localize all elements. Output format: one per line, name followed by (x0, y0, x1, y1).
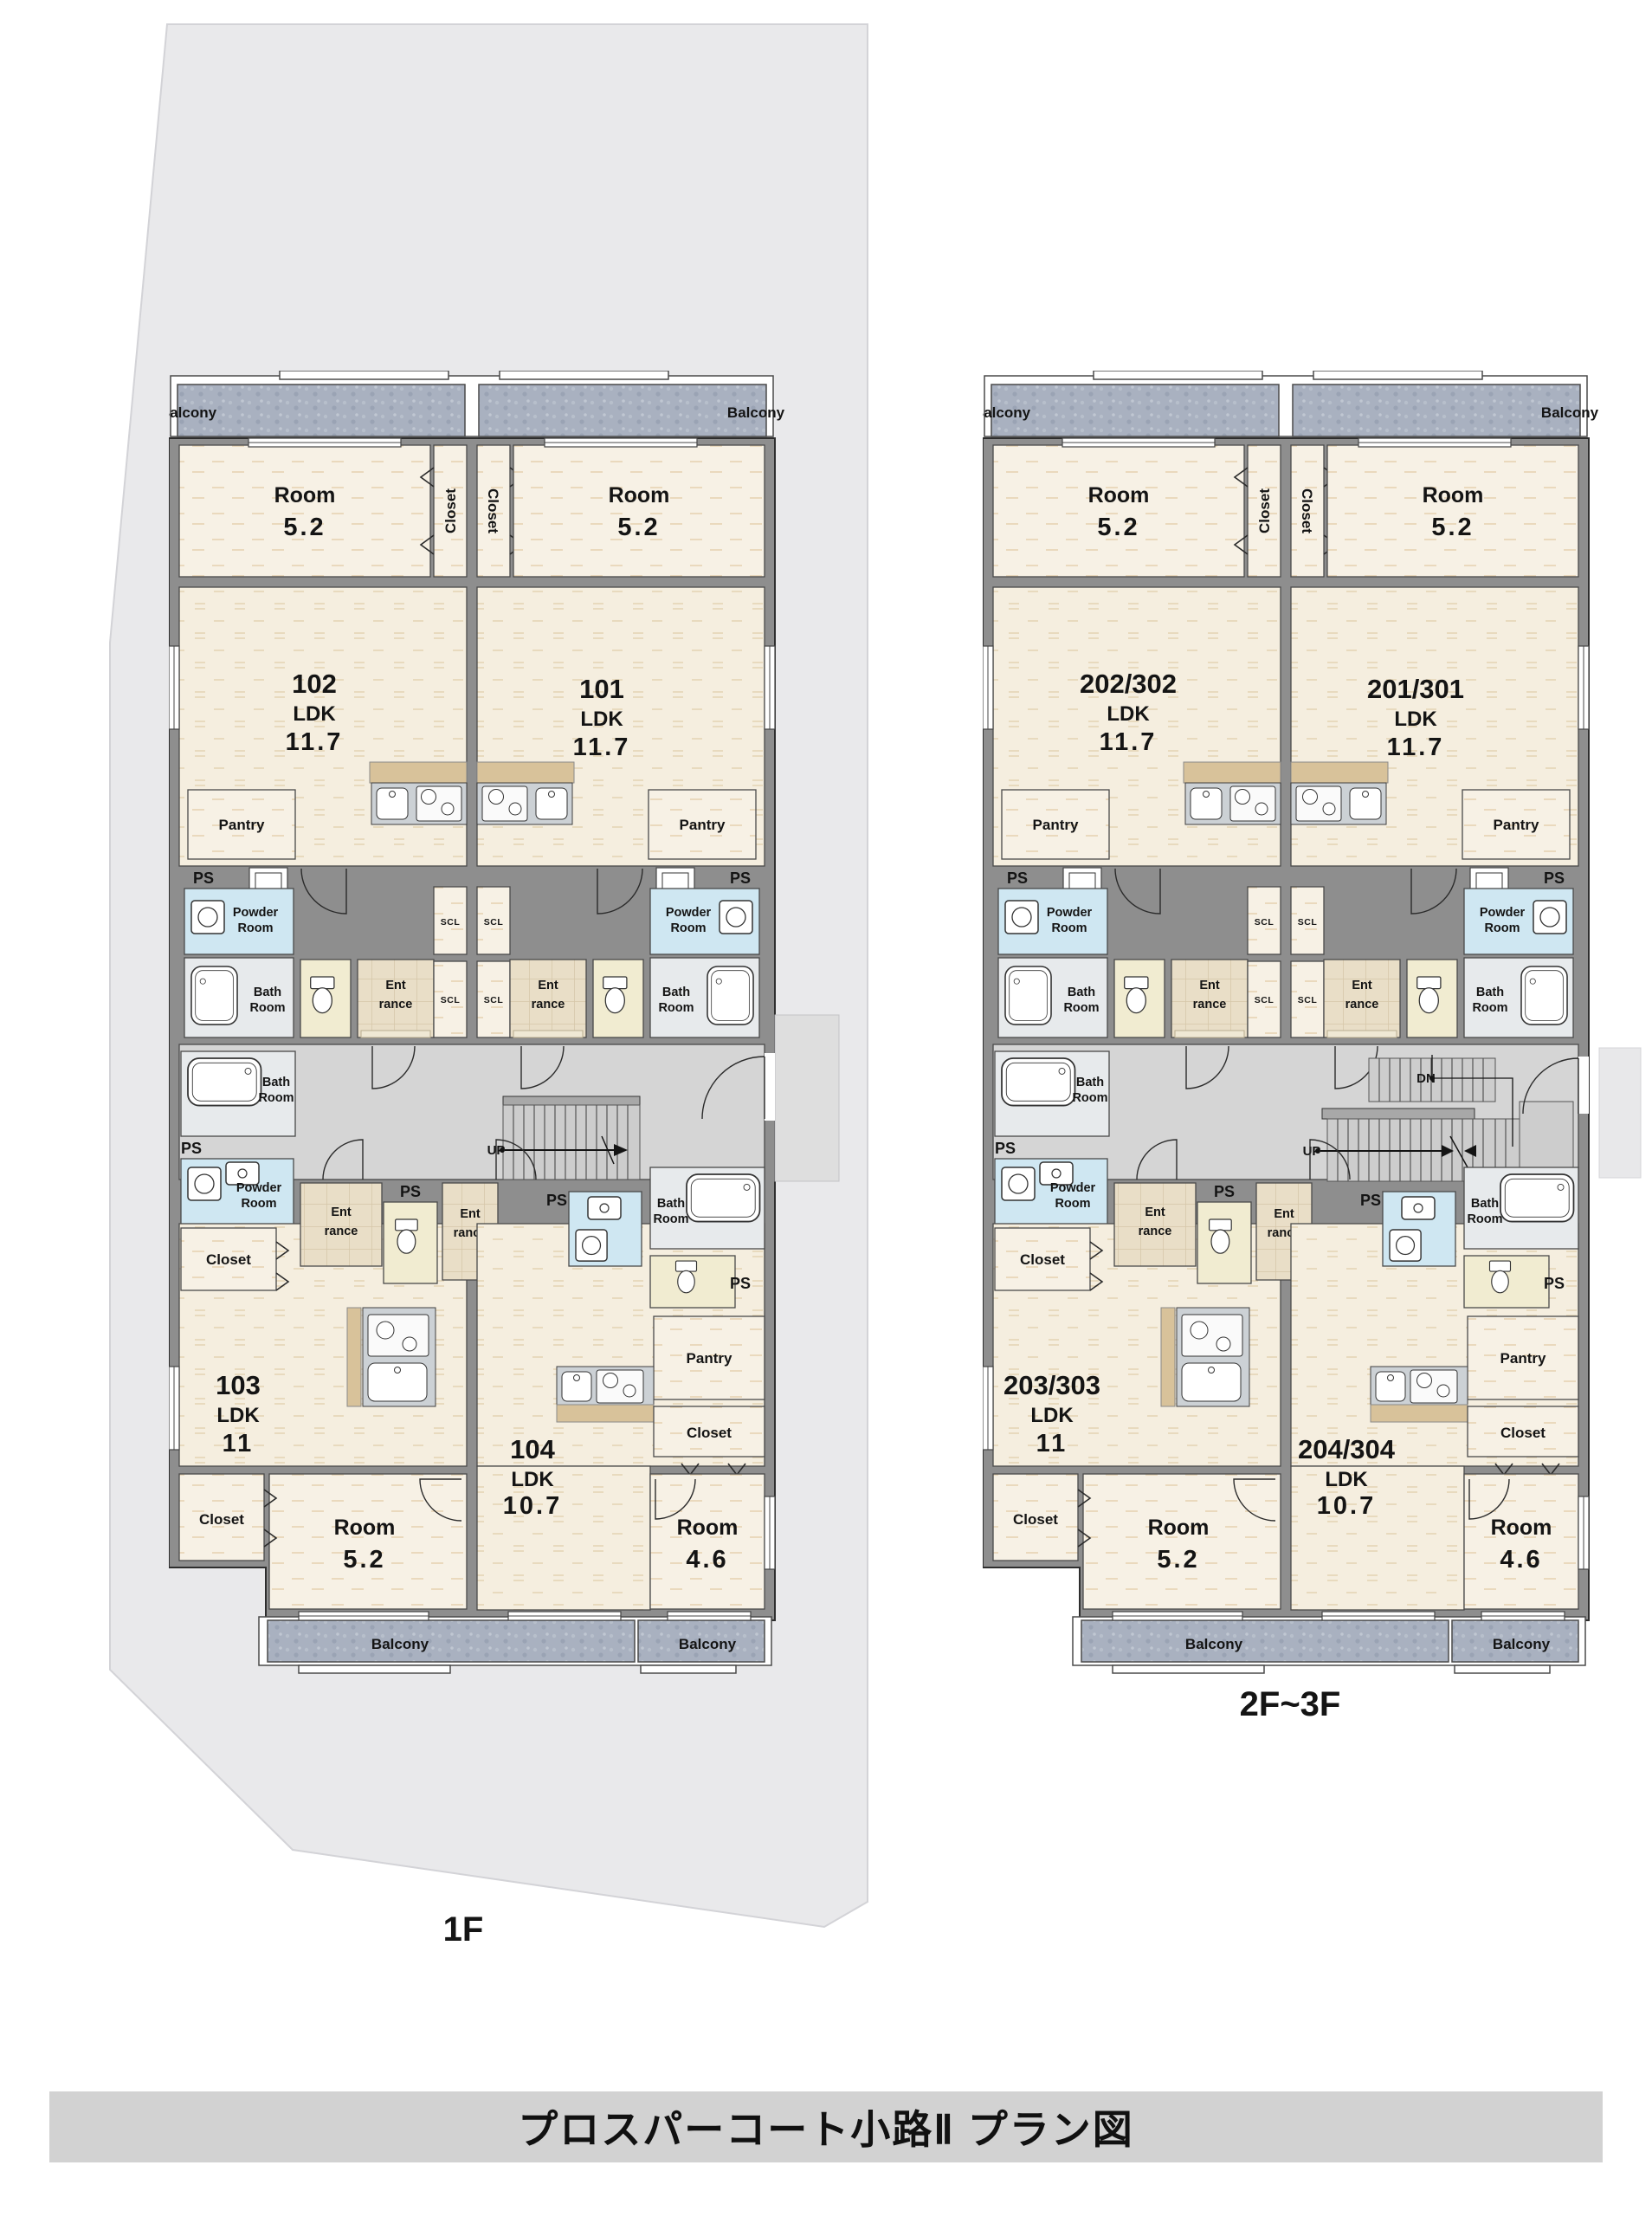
ldk-size: 11 (223, 1430, 255, 1458)
ps-label: PS (1007, 869, 1028, 887)
bath-room-label: Room (249, 1001, 285, 1015)
kitchen-lower-left (347, 1308, 436, 1406)
entrance-label: rance (379, 998, 413, 1012)
bath-room-label: Bath (1471, 1197, 1499, 1211)
entrance-label: Ent (1274, 1207, 1294, 1221)
entrance-label: Ent (385, 979, 406, 992)
bath-room-label: Room (1072, 1091, 1107, 1105)
entrance-label: rance (325, 1225, 358, 1238)
bath-room-upper-right: Bath Room (650, 958, 759, 1037)
balcony-label: Balcony (679, 1636, 737, 1652)
balcony-label: Balcony (1493, 1636, 1551, 1652)
pantry-label: Pantry (1033, 817, 1079, 833)
wc-lower-mid: PS (650, 1256, 751, 1308)
entrance-label: Ent (1352, 979, 1372, 992)
wc-lower-mid: PS (1464, 1256, 1565, 1308)
bedroom-upper-left: Room 5.2 (993, 445, 1244, 577)
stairs: UP (487, 1096, 640, 1180)
closet-lower-left-lower: Closet (179, 1474, 276, 1561)
ps-label: PS (1214, 1183, 1235, 1200)
entrance-upper-right: Ent rance (1324, 960, 1400, 1037)
wc-upper-left (1114, 960, 1165, 1037)
page: Balcony Balcony Room 5.2 Closet Closet R… (0, 0, 1652, 2217)
bath-room-label: Bath (262, 1076, 290, 1089)
entrance-upper-left: Ent rance (1171, 960, 1248, 1037)
room-label: Room (1148, 1516, 1210, 1540)
title-bar: プロスパーコート小路Ⅱ プラン図 (49, 2091, 1603, 2162)
unit-number: 202/302 (1080, 669, 1177, 699)
floor-plan-1f: Balcony Balcony Room 5.2 Closet Closet R… (169, 371, 844, 1678)
ldk-size: 11.7 (286, 728, 344, 756)
room-label: Room (1491, 1516, 1552, 1540)
balcony-label: Balcony (371, 1636, 429, 1652)
room-size: 5.2 (343, 1546, 385, 1574)
pantry-label: Pantry (1500, 1350, 1546, 1367)
kitchen-upper-left (370, 762, 467, 824)
ldk-label: LDK (1394, 708, 1437, 731)
powder-room-label: Powder (1480, 906, 1526, 920)
entrance-label: rance (1193, 998, 1227, 1012)
bath-room-label: Room (1472, 1001, 1507, 1015)
closet-label: Closet (687, 1425, 732, 1441)
bath-room-upper-left: Bath Room (998, 958, 1107, 1037)
bedroom-lower-left: Room 5.2 (269, 1474, 467, 1609)
kitchen-lower-mid (557, 1367, 654, 1422)
pantry-label: Pantry (219, 817, 265, 833)
closet-label: Closet (206, 1251, 251, 1268)
pantry-lower-mid: Pantry (654, 1316, 765, 1399)
kitchen-lower-mid (1371, 1367, 1468, 1422)
ps-label: PS (193, 869, 214, 887)
wc-upper-right (593, 960, 643, 1037)
bath-room-label: Bath (1076, 1076, 1104, 1089)
bedroom-upper-right: Room 5.2 (1327, 445, 1578, 577)
powder-room-label: Room (237, 921, 273, 935)
scl-label: SCL (441, 917, 461, 928)
bath-room-label: Room (1063, 1001, 1099, 1015)
entrance-label: Ent (331, 1205, 352, 1219)
bath-room-label: Bath (1068, 986, 1095, 999)
room-label: Room (1423, 483, 1484, 507)
bedroom-upper-right: Room 5.2 (513, 445, 765, 577)
bath-room-upper-right: Bath Room (1464, 958, 1573, 1037)
closet-label: Closet (1256, 488, 1273, 533)
closet-label: Closet (1500, 1425, 1546, 1441)
powder-room-label: Room (670, 921, 706, 935)
plan-title: プロスパーコート小路Ⅱ プラン図 (518, 2098, 1133, 2156)
kitchen-upper-right (1291, 762, 1388, 824)
ps-label: PS (546, 1192, 567, 1209)
balcony-top: Balcony Balcony (983, 371, 1599, 436)
bath-room-label: Bath (657, 1197, 685, 1211)
pantry-label: Pantry (680, 817, 726, 833)
kitchen-upper-left (1184, 762, 1281, 824)
room-size: 5.2 (1431, 514, 1474, 541)
scl-label: SCL (1298, 917, 1318, 928)
powder-room-label: Room (1051, 921, 1087, 935)
closet-label: Closet (199, 1511, 244, 1528)
room-size: 4.6 (1500, 1546, 1542, 1574)
powder-room-label: Powder (1050, 1181, 1096, 1195)
balcony-bottom: Balcony Balcony (259, 1617, 771, 1673)
bath-room-label: Bath (662, 986, 690, 999)
bath-room-label: Bath (254, 986, 281, 999)
powder-room-label: Powder (236, 1181, 282, 1195)
balcony-label: Balcony (1185, 1636, 1243, 1652)
entrance-label: rance (532, 998, 565, 1012)
entrance-upper-left: Ent rance (358, 960, 434, 1037)
ldk-label: LDK (1107, 702, 1150, 726)
bath-room-label: Room (1467, 1212, 1502, 1226)
room-label: Room (609, 483, 670, 507)
unit-number: 104 (510, 1434, 555, 1464)
entrance-label: rance (1345, 998, 1379, 1012)
scl-label: SCL (1255, 917, 1274, 928)
ldk-label: LDK (1325, 1468, 1368, 1491)
closet-label: Closet (1020, 1251, 1065, 1268)
kitchen-lower-left (1161, 1308, 1249, 1406)
balcony-label: Balcony (169, 404, 217, 421)
powder-room-label: Powder (233, 906, 279, 920)
closet-lower-left-upper: Closet (995, 1228, 1102, 1290)
ldk-size: 10.7 (503, 1492, 562, 1520)
entrance-upper-right: Ent rance (510, 960, 586, 1037)
closet-lower-left-lower: Closet (993, 1474, 1090, 1561)
ps-label: PS (730, 1275, 751, 1292)
bath-room-lower-mid: Bath Room (1464, 1167, 1578, 1249)
ldk-size: 11 (1036, 1430, 1068, 1458)
kitchen-upper-right (477, 762, 574, 824)
pantry-label: Pantry (1494, 817, 1539, 833)
scl-label: SCL (1298, 995, 1318, 1005)
stair-landing-outside (1599, 1048, 1641, 1178)
entrance-label: Ent (460, 1207, 481, 1221)
ps-label: PS (400, 1183, 421, 1200)
ldk-size: 11.7 (1100, 728, 1158, 756)
balcony-label: Balcony (983, 404, 1031, 421)
balcony-top: Balcony Balcony (169, 371, 785, 436)
ps-label: PS (1544, 1275, 1565, 1292)
closet-label: Closet (485, 488, 501, 533)
caption-1f: 1F (394, 1910, 532, 1949)
bath-room-label: Room (653, 1212, 688, 1226)
ldk-size: 11.7 (1387, 734, 1445, 761)
unit-number: 203/303 (1003, 1370, 1100, 1400)
powder-room-label: Powder (666, 906, 712, 920)
balcony-label: Balcony (1541, 404, 1599, 421)
floor-plan-2f3f: Balcony Balcony Room 5.2 Closet Closet R… (983, 371, 1652, 1678)
bedroom-lower-right: Room 4.6 (650, 1474, 765, 1609)
bedroom-lower-right: Room 4.6 (1464, 1474, 1578, 1609)
room-label: Room (334, 1516, 396, 1540)
room-size: 4.6 (686, 1546, 728, 1574)
scl-label: SCL (1255, 995, 1274, 1005)
room-size: 5.2 (283, 514, 326, 541)
scl-label: SCL (484, 917, 504, 928)
bath-room-lower-left: Bath Room (995, 1051, 1109, 1136)
room-size: 5.2 (617, 514, 660, 541)
ps-label: PS (1544, 869, 1565, 887)
caption-2f3f: 2F~3F (1199, 1685, 1381, 1724)
unit-number: 101 (579, 674, 624, 704)
bath-room-lower-mid: Bath Room (650, 1167, 765, 1249)
unit-number: 204/304 (1298, 1434, 1396, 1464)
ldk-size: 10.7 (1317, 1492, 1376, 1520)
wc-upper-right (1407, 960, 1457, 1037)
closet-label: Closet (1299, 488, 1315, 533)
pantry-label: Pantry (687, 1350, 732, 1367)
ldk-label: LDK (511, 1468, 554, 1491)
powder-room-label: Room (241, 1197, 276, 1211)
bath-room-upper-left: Bath Room (184, 958, 294, 1037)
unit-number: 201/301 (1367, 674, 1464, 704)
powder-room-label: Powder (1047, 906, 1093, 920)
bedroom-lower-left: Room 5.2 (1083, 1474, 1281, 1609)
room-label: Room (274, 483, 336, 507)
entry-porch (775, 1015, 839, 1181)
ps-label: PS (181, 1140, 202, 1157)
bath-room-lower-left: Bath Room (181, 1051, 295, 1136)
ldk-label: LDK (580, 708, 623, 731)
stair-door-gap (1578, 1057, 1589, 1114)
ps-label: PS (730, 869, 751, 887)
powder-room-label: Room (1484, 921, 1520, 935)
bath-room-label: Room (258, 1091, 294, 1105)
bath-room-label: Room (658, 1001, 694, 1015)
unit-number: 103 (216, 1370, 261, 1400)
closet-lower-left-upper: Closet (181, 1228, 288, 1290)
scl-label: SCL (441, 995, 461, 1005)
ldk-label: LDK (293, 702, 336, 726)
bath-room-label: Bath (1476, 986, 1504, 999)
entry-door-gap (765, 1053, 775, 1121)
ldk-label: LDK (216, 1404, 260, 1427)
balcony-bottom: Balcony Balcony (1073, 1617, 1585, 1673)
entrance-label: Ent (1199, 979, 1220, 992)
scl-label: SCL (484, 995, 504, 1005)
entrance-label: Ent (538, 979, 558, 992)
room-label: Room (1088, 483, 1150, 507)
powder-room-label: Room (1055, 1197, 1090, 1211)
balcony-label: Balcony (727, 404, 785, 421)
closet-label: Closet (442, 488, 459, 533)
entrance-label: Ent (1145, 1205, 1165, 1219)
ps-label: PS (1360, 1192, 1381, 1209)
ps-label: PS (995, 1140, 1016, 1157)
ldk-size: 11.7 (573, 734, 631, 761)
wc-upper-left (300, 960, 351, 1037)
bedroom-upper-left: Room 5.2 (179, 445, 430, 577)
ldk-label: LDK (1030, 1404, 1074, 1427)
entrance-label: rance (1139, 1225, 1172, 1238)
closet-label: Closet (1013, 1511, 1058, 1528)
room-size: 5.2 (1097, 514, 1139, 541)
unit-number: 102 (292, 669, 337, 699)
room-size: 5.2 (1157, 1546, 1199, 1574)
room-label: Room (677, 1516, 739, 1540)
pantry-lower-mid: Pantry (1468, 1316, 1578, 1399)
